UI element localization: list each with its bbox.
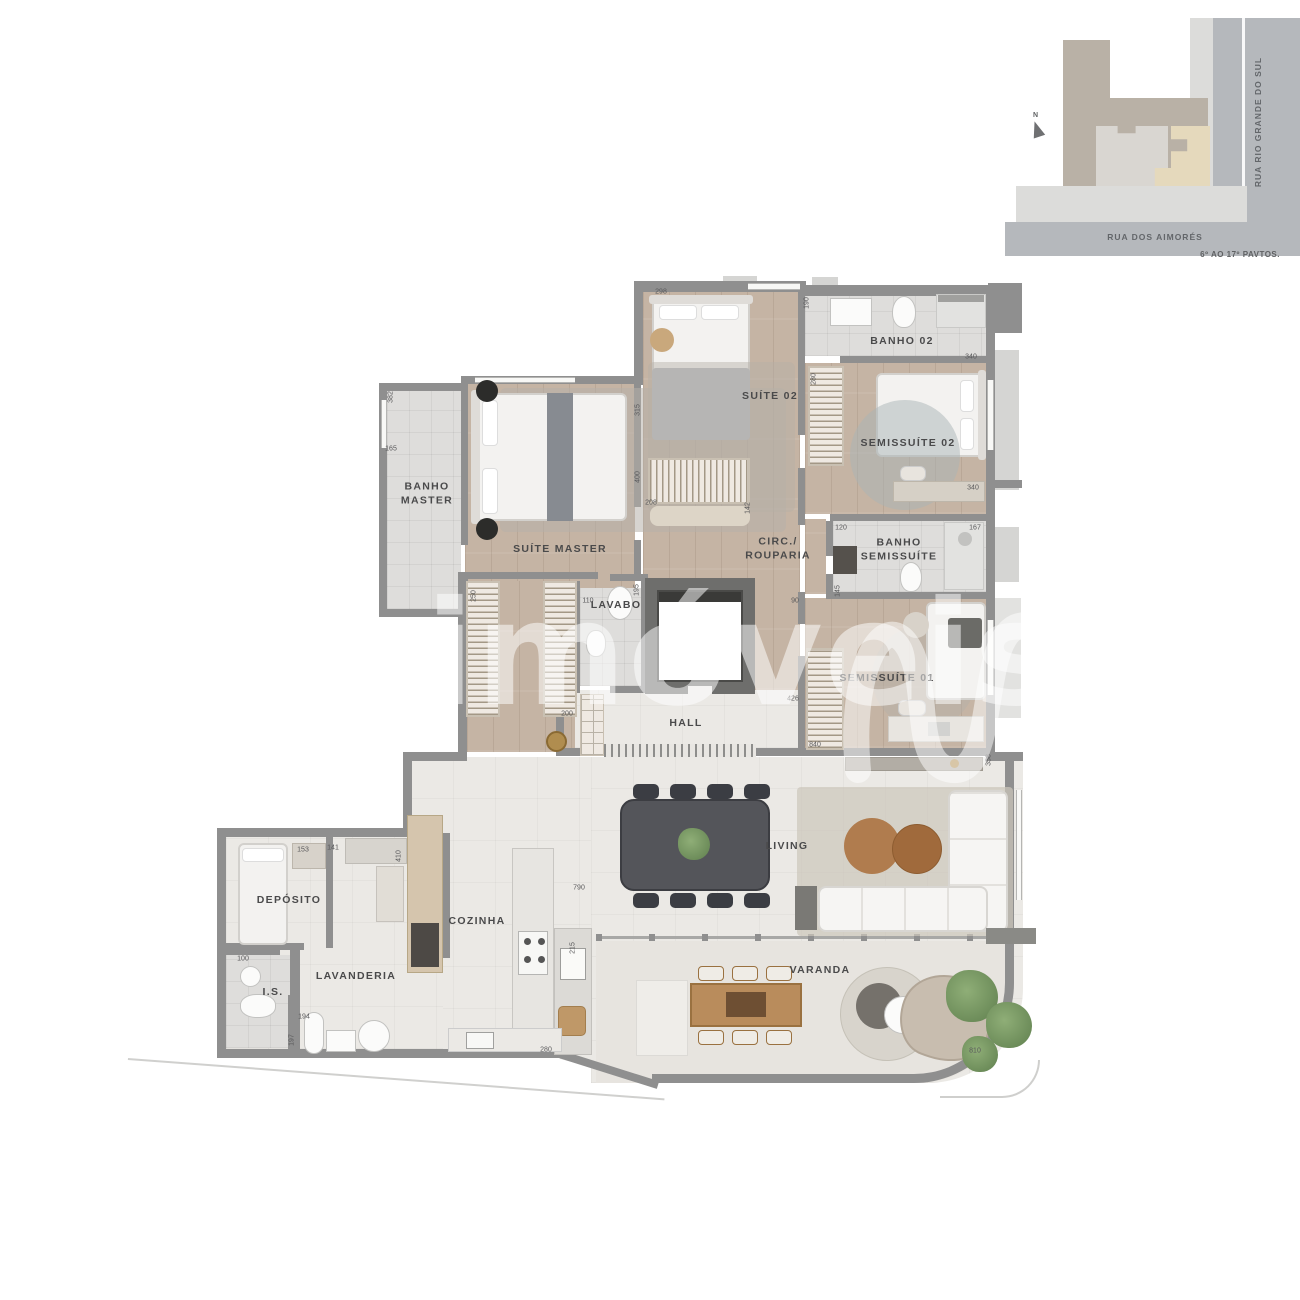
utility-sink bbox=[326, 1030, 356, 1052]
sofa-living bbox=[818, 886, 988, 932]
room-label-deposito: DEPÓSITO bbox=[257, 894, 321, 908]
map-north-label: N bbox=[1033, 112, 1038, 119]
sink bbox=[466, 1032, 494, 1049]
cooktop bbox=[518, 931, 548, 975]
map-street-right-label: RUA RIO GRANDE DO SUL bbox=[1253, 22, 1263, 222]
sink-is bbox=[240, 966, 261, 987]
map-caption: 6º AO 17º PAVTOS. bbox=[1120, 250, 1280, 259]
vanity-banho-02 bbox=[830, 298, 872, 326]
room-label-lavanderia: LAVANDERIA bbox=[316, 970, 396, 984]
dining-chair bbox=[633, 784, 659, 799]
outdoor-chair bbox=[698, 1030, 724, 1045]
room-label-suite-master: SUÍTE MASTER bbox=[513, 543, 607, 557]
entry-textured-wall bbox=[604, 744, 756, 757]
dimension-label: 165 bbox=[385, 446, 397, 453]
room-label-is: I.S. bbox=[263, 986, 284, 1000]
room-label-semissuite-02: SEMISSUÍTE 02 bbox=[860, 437, 955, 451]
dining-chair bbox=[744, 784, 770, 799]
dimension-label: 410 bbox=[396, 850, 403, 862]
dimension-label: 208 bbox=[645, 500, 657, 507]
laundry-basket bbox=[358, 1020, 390, 1052]
outdoor-chair bbox=[732, 966, 758, 981]
plant-centerpiece bbox=[678, 828, 710, 860]
dining-chair bbox=[670, 784, 696, 799]
room-label-varanda: VARANDA bbox=[790, 964, 851, 978]
dimension-label: 298 bbox=[655, 289, 667, 296]
planter-box bbox=[986, 928, 1036, 944]
nightstand bbox=[476, 518, 498, 540]
nightstand bbox=[476, 380, 498, 402]
toilet-banho-02 bbox=[892, 296, 916, 328]
outdoor-chair bbox=[766, 1030, 792, 1045]
dimension-label: 382 bbox=[388, 391, 395, 403]
dimension-label: 400 bbox=[635, 471, 642, 483]
dimension-label: 215 bbox=[570, 942, 577, 954]
room-label-banho-master: BANHO MASTER bbox=[401, 480, 453, 507]
pouf bbox=[650, 328, 674, 352]
chair bbox=[900, 466, 926, 481]
dimension-label: 141 bbox=[327, 845, 339, 852]
dimension-label: 194 bbox=[298, 1014, 310, 1021]
dimension-label: 142 bbox=[745, 502, 752, 514]
stone-mat bbox=[636, 980, 688, 1056]
dimension-label: 280 bbox=[811, 373, 818, 385]
watermark-logo-mark bbox=[830, 575, 1080, 785]
dimension-label: 840 bbox=[809, 742, 821, 749]
dimension-label: 790 bbox=[573, 885, 585, 892]
dining-chair bbox=[707, 893, 733, 908]
room-label-cozinha: COZINHA bbox=[449, 915, 506, 929]
dimension-label: 190 bbox=[804, 297, 811, 309]
dimension-label: 120 bbox=[835, 525, 847, 532]
room-label-living: LIVING bbox=[766, 840, 809, 854]
varanda-glass-track bbox=[596, 936, 1016, 939]
dimension-label: 810 bbox=[969, 1048, 981, 1055]
room-label-suite-02: SUÍTE 02 bbox=[742, 390, 798, 404]
outdoor-chair bbox=[766, 966, 792, 981]
room-label-banho-02: BANHO 02 bbox=[870, 335, 934, 349]
dimension-label: 100 bbox=[237, 956, 249, 963]
coffee-table bbox=[892, 824, 942, 874]
dimension-label: 340 bbox=[967, 485, 979, 492]
north-arrow-icon bbox=[1029, 120, 1045, 139]
dimension-label: 315 bbox=[635, 404, 642, 416]
outdoor-chair bbox=[732, 1030, 758, 1045]
map-street-bottom-label: RUA DOS AIMORÉS bbox=[1065, 232, 1245, 242]
dimension-label: 197 bbox=[289, 1034, 296, 1046]
table-runner bbox=[726, 992, 766, 1017]
room-label-banho-semissuite: BANHO SEMISSUÍTE bbox=[861, 536, 938, 563]
dining-chair bbox=[744, 893, 770, 908]
dimension-label: 167 bbox=[969, 525, 981, 532]
stool bbox=[558, 1006, 586, 1036]
dining-chair bbox=[670, 893, 696, 908]
site-map: N RUA RIO GRANDE DO SUL RUA DOS AIMORÉS … bbox=[1005, 18, 1300, 266]
dimension-label: 280 bbox=[540, 1047, 552, 1054]
dimension-label: 153 bbox=[297, 847, 309, 854]
side-table bbox=[795, 886, 817, 930]
wardrobe-suite-02 bbox=[648, 458, 750, 504]
bench bbox=[650, 506, 750, 526]
dining-chair bbox=[707, 784, 733, 799]
dimension-label: 340 bbox=[965, 354, 977, 361]
room-label-circ-rouparia: CIRC./ ROUPARIA bbox=[745, 535, 811, 562]
outdoor-chair bbox=[698, 966, 724, 981]
dining-chair bbox=[633, 893, 659, 908]
oven-tower bbox=[411, 923, 439, 967]
